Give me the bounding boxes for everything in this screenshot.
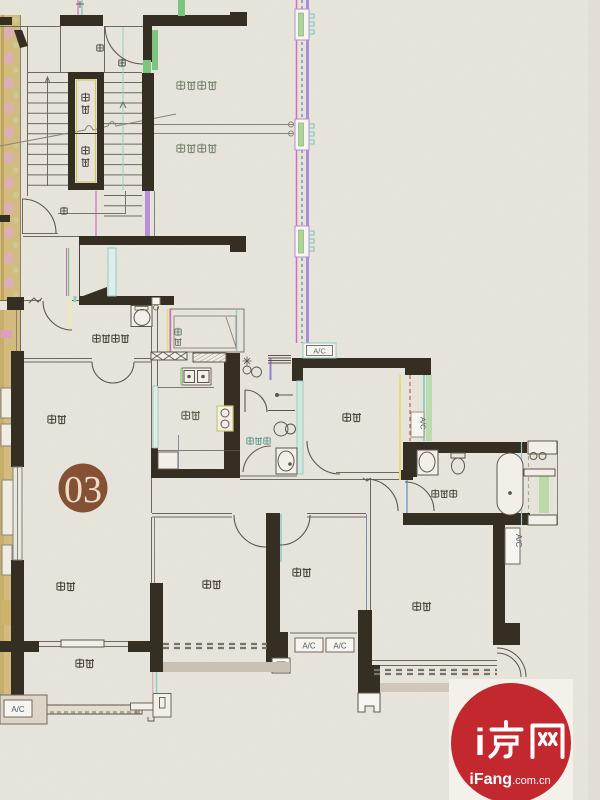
svg-text:A/C: A/C (419, 417, 428, 430)
svg-text:A/C: A/C (514, 534, 523, 548)
svg-text:03: 03 (64, 469, 102, 511)
svg-text:A/C: A/C (11, 705, 25, 714)
svg-text:A/C: A/C (302, 642, 316, 651)
svg-text:A/C: A/C (333, 642, 347, 651)
svg-text:A/C: A/C (313, 347, 326, 356)
svg-text:i: i (475, 722, 486, 764)
